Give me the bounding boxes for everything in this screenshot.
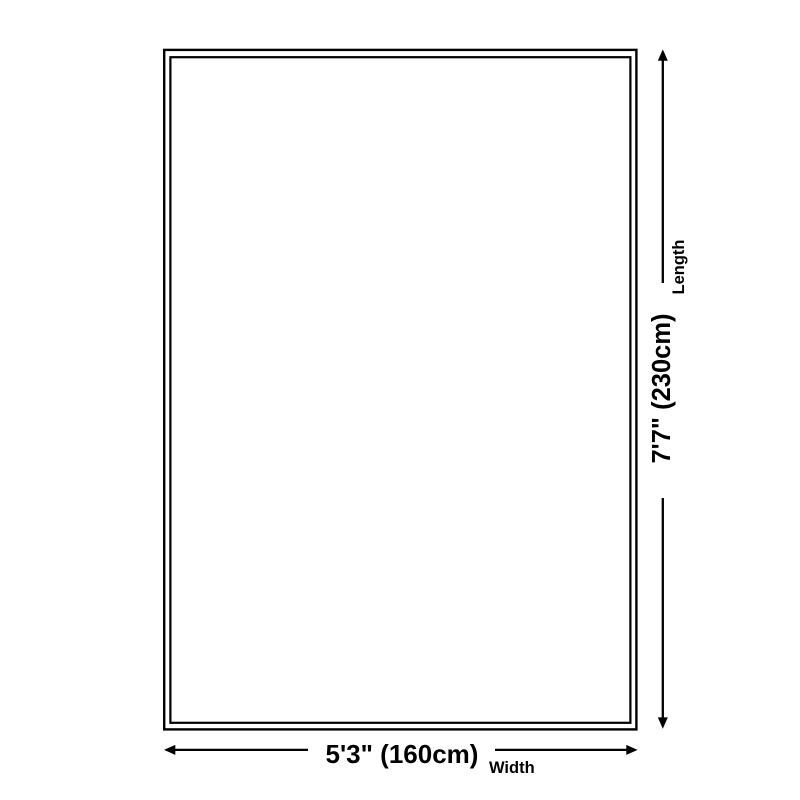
svg-text:7'7" (230cm): 7'7" (230cm) — [648, 314, 676, 464]
svg-text:Length: Length — [670, 240, 688, 295]
svg-text:Width: Width — [489, 759, 535, 777]
svg-text:5'3" (160cm): 5'3" (160cm) — [326, 739, 479, 769]
